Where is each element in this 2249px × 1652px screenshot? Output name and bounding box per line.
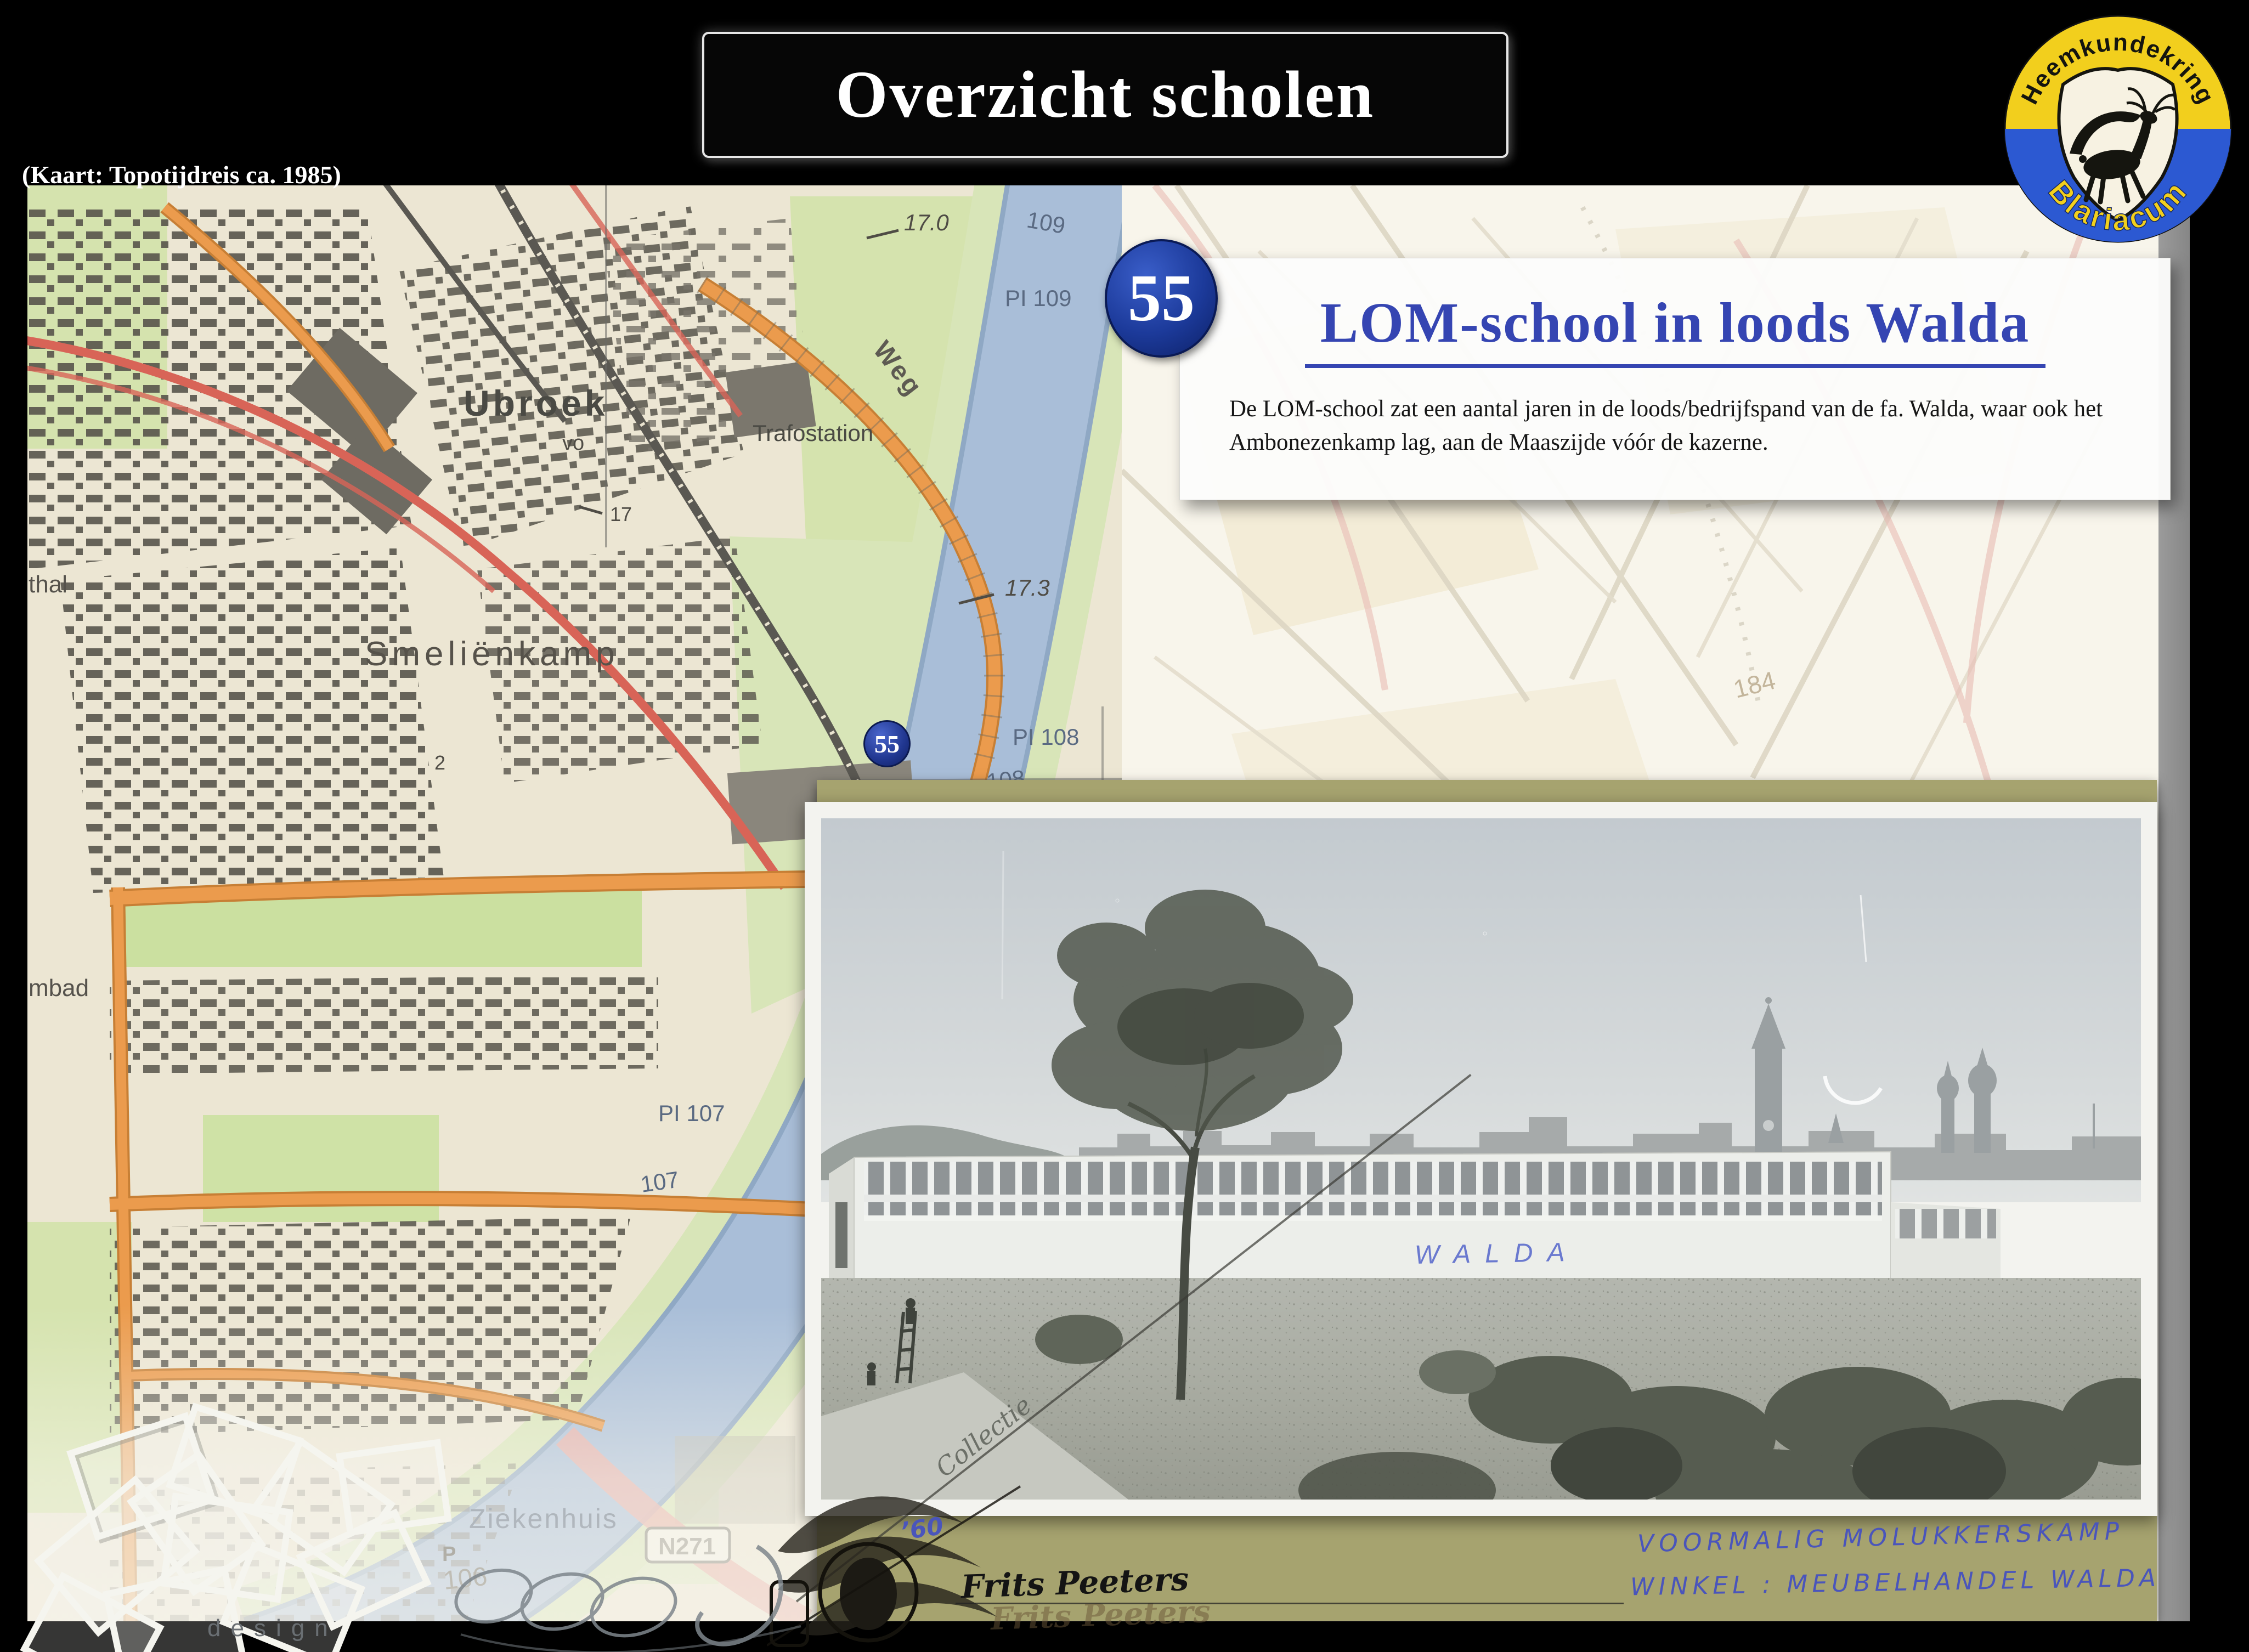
- frames-decoration: [4, 1400, 504, 1652]
- slide: Ubroek vo 17 Weg Trafostation 17.0 109 P…: [0, 0, 2249, 1652]
- title-underline: [1305, 364, 2045, 368]
- map-label-2: 2: [434, 751, 445, 774]
- map-label-pl108: PI 108: [1013, 724, 1079, 750]
- walda-graffiti: WALDA: [1414, 1238, 1579, 1270]
- page-title: Overzicht scholen: [836, 56, 1375, 133]
- map-label-pl107: PI 107: [658, 1100, 725, 1126]
- map-label-vo: vo: [562, 432, 584, 455]
- title-banner: Overzicht scholen: [702, 32, 1508, 158]
- map-label-thal: thal: [29, 571, 67, 598]
- school-number-badge: 55: [1105, 239, 1218, 358]
- script-swirl-decoration: [450, 1530, 812, 1652]
- signature: Frits Peeters: [960, 1560, 1189, 1605]
- map-label-smelienkamp: Smeliënkamp: [365, 635, 619, 673]
- card-title: LOM-school in loods Walda: [1180, 290, 2170, 355]
- map-label-trafostation: Trafostation: [753, 420, 873, 446]
- signature-underline: [956, 1603, 1624, 1604]
- map-label-ubroek: Ubroek: [464, 383, 608, 423]
- map-label-17: 17: [610, 503, 632, 525]
- map-marker-55: 55: [863, 720, 911, 767]
- map-label-170: 17.0: [904, 210, 949, 235]
- map-label-173: 17.3: [1005, 575, 1050, 601]
- map-credit: (Kaart: Topotijdreis ca. 1985): [22, 160, 341, 189]
- card-body: De LOM-school zat een aantal jaren in de…: [1229, 392, 2126, 459]
- map-label-107: 107: [639, 1167, 681, 1197]
- map-label-pl109: PI 109: [1005, 285, 1071, 311]
- walda-building: [829, 1152, 2001, 1299]
- heemkundekring-blariacum-logo: Heemkundekring Blariacum: [1999, 10, 2236, 247]
- map-label-mbad: mbad: [29, 975, 89, 1002]
- design-watermark-label: design: [207, 1615, 338, 1642]
- info-card: LOM-school in loods Walda De LOM-school …: [1179, 258, 2171, 500]
